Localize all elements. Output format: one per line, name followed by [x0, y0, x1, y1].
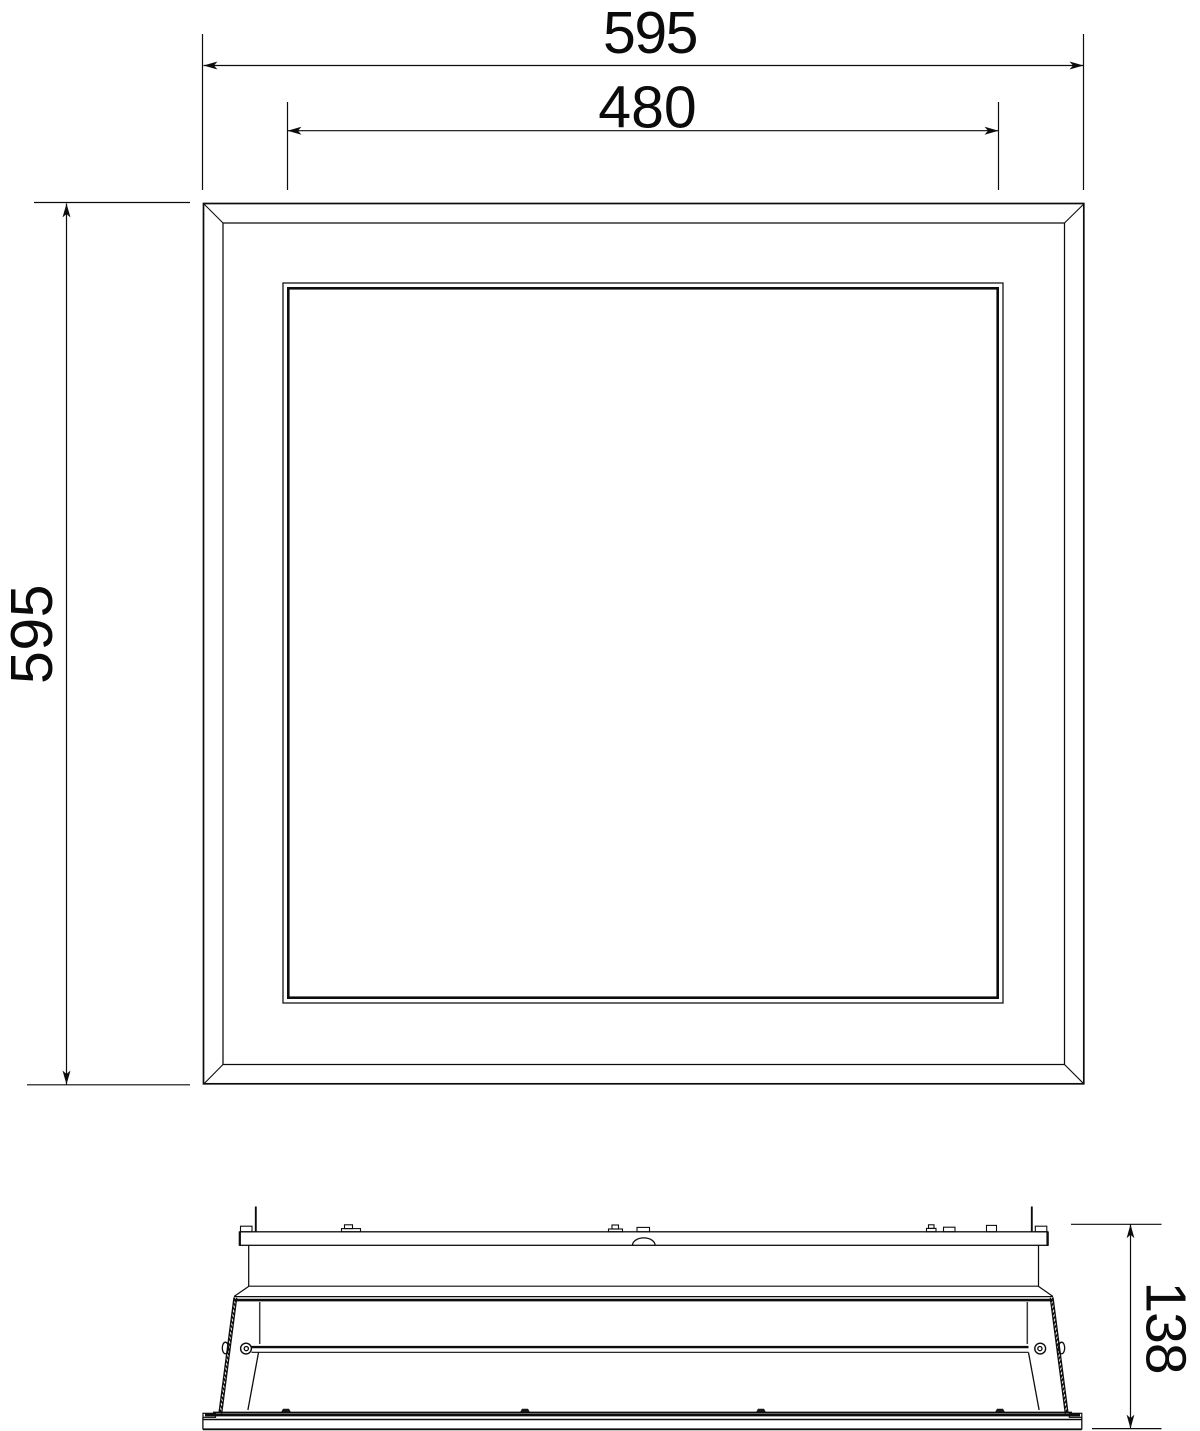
svg-text:138: 138: [1134, 1281, 1198, 1373]
svg-text:480: 480: [598, 75, 696, 141]
svg-text:595: 595: [603, 0, 697, 66]
svg-text:595: 595: [0, 584, 65, 684]
